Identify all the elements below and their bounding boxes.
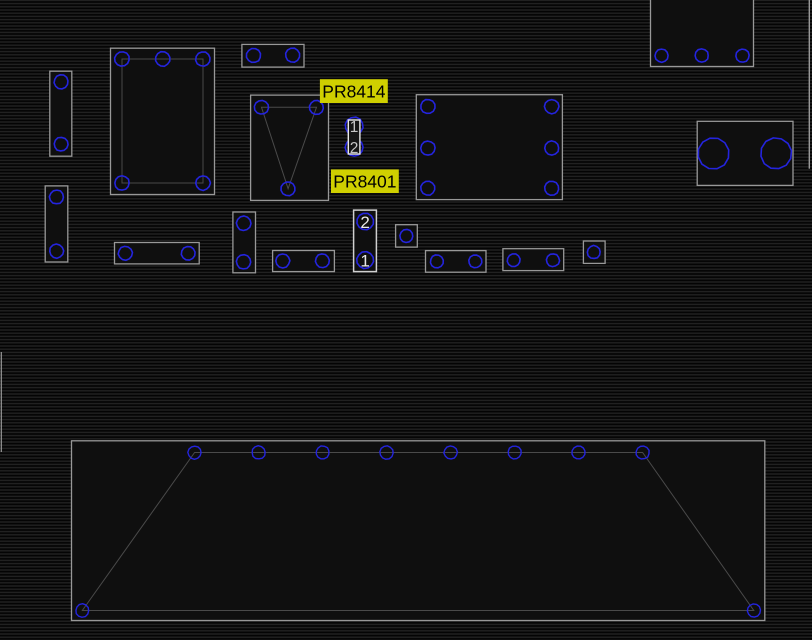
svg-text:PR8401: PR8401 xyxy=(333,172,396,192)
svg-text:2: 2 xyxy=(350,140,359,157)
svg-text:1: 1 xyxy=(360,251,369,270)
svg-text:1: 1 xyxy=(350,119,359,136)
svg-text:PR8414: PR8414 xyxy=(322,82,386,102)
svg-text:2: 2 xyxy=(360,213,369,232)
